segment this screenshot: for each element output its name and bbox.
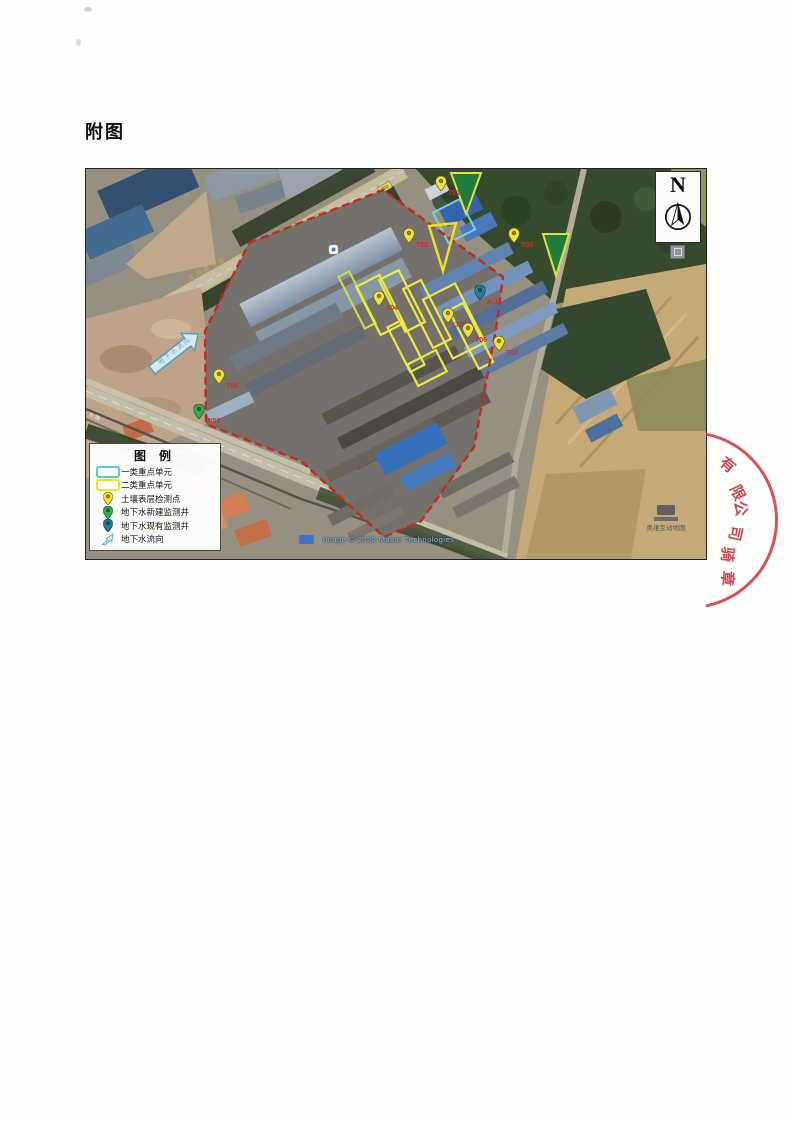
marker-label: T06 xyxy=(475,337,487,344)
marker-label: W01 xyxy=(206,418,221,425)
marker-label: A-1 xyxy=(487,299,498,306)
legend-item-new-well: 地下水新建监测井 xyxy=(95,506,215,520)
north-label: N xyxy=(670,173,686,197)
class2-rect-icon xyxy=(95,479,121,491)
seal-char: 章 xyxy=(717,569,739,589)
scan-artifact xyxy=(84,7,92,12)
marker-label: T03 xyxy=(521,242,533,249)
marker-label: T02 xyxy=(416,242,428,249)
legend-item-soil: 土壤表层检测点 xyxy=(95,492,215,506)
north-indicator: N xyxy=(655,171,701,243)
flow-arrow-icon xyxy=(95,532,121,546)
ovital-watermark-text: 奥维互动地图 xyxy=(643,522,689,532)
new-well-pin-icon xyxy=(95,506,121,519)
seal-char: 公 xyxy=(729,498,753,519)
legend-title: 图 例 xyxy=(95,447,215,464)
existing-well-pin-icon xyxy=(95,519,121,532)
marker-label: T07 xyxy=(506,350,518,357)
page-title: 附图 xyxy=(85,118,125,144)
marker-label: T01 xyxy=(448,190,460,197)
ovital-logo-bar xyxy=(654,517,678,521)
company-seal: 有 限 公 司 骑 章 xyxy=(706,425,793,607)
compass-icon xyxy=(660,197,696,237)
map-legend: 图 例 一类重点单元 二类重点单元 土壤表层检测点 地下水新建监测井 xyxy=(89,443,221,551)
map-logo-chip xyxy=(299,535,314,544)
map-attribution: Image © 2020 Maxar Technologies xyxy=(323,535,454,544)
marker-label: T08 xyxy=(226,383,238,390)
map-ui-chip xyxy=(670,245,685,259)
marker-label: T04 xyxy=(386,305,398,312)
seal-char: 骑 xyxy=(717,545,739,565)
poi-chip xyxy=(329,245,338,254)
legend-item-class1: 一类重点单元 xyxy=(95,465,215,479)
legend-item-existing-well: 地下水现有监测井 xyxy=(95,519,215,533)
scanned-document-page: 附图 xyxy=(0,0,793,1121)
soil-pin-icon xyxy=(95,492,121,505)
scan-artifact xyxy=(76,39,81,46)
legend-item-flow: 地下水流向 xyxy=(95,533,215,547)
ovital-watermark: 奥维互动地图 xyxy=(643,505,689,532)
class1-rect-icon xyxy=(95,466,121,478)
legend-item-class2: 二类重点单元 xyxy=(95,479,215,493)
ovital-logo-icon xyxy=(657,505,675,515)
site-map: 东风南大街 302 302 xyxy=(85,168,707,560)
